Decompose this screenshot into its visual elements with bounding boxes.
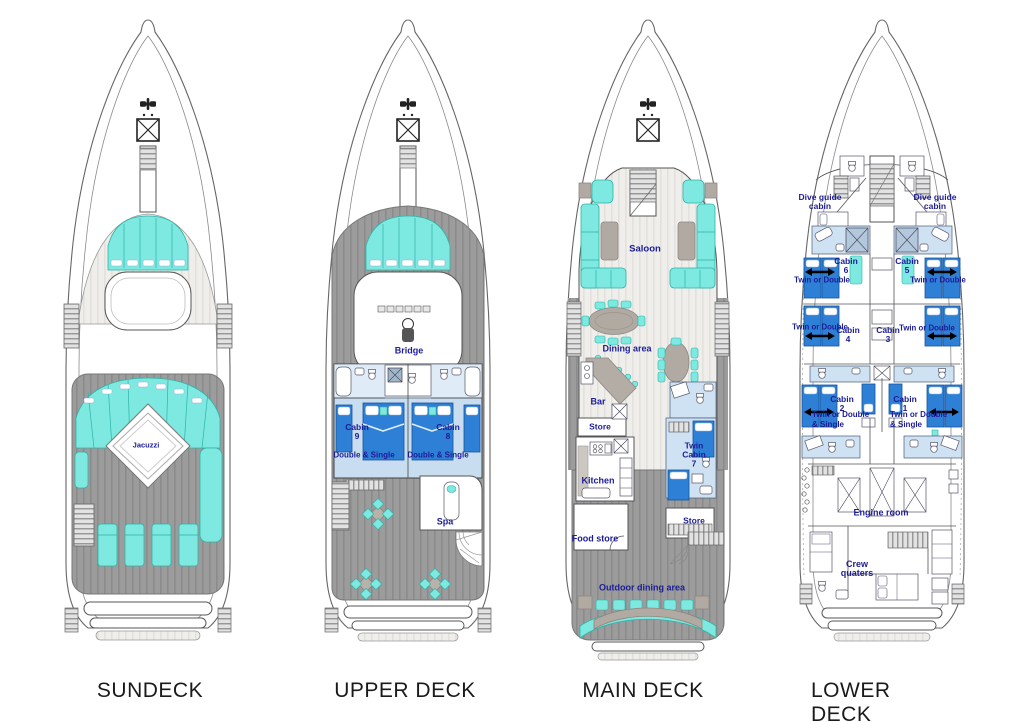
- dive-guide-port-label: Dive guide cabin: [799, 193, 842, 211]
- upper-deck-plan: [325, 20, 491, 641]
- port-stairs: [567, 302, 581, 356]
- main-deck-plan: [566, 20, 730, 660]
- deck-plans-drawing: [0, 0, 1024, 722]
- coffee-table: [601, 222, 618, 260]
- cabin9-type-label: Double & Single: [333, 451, 394, 460]
- cabin9-label: Cabin 9: [345, 423, 369, 441]
- cabin5-label: Cabin 5: [895, 257, 919, 275]
- central-staircase: [870, 156, 894, 222]
- helm-chair: [402, 328, 414, 342]
- cabin8-label: Cabin 8: [436, 423, 460, 441]
- armchair: [592, 180, 613, 203]
- crew-quarters-label: Crew quaters: [841, 560, 874, 578]
- bow-hatch-icon: [397, 119, 419, 141]
- bathtub: [336, 367, 351, 396]
- food-store-label: Food store: [572, 535, 619, 544]
- starboard-stairs: [715, 302, 729, 356]
- cabin6-label: Cabin 6: [834, 257, 858, 275]
- saloon-label: Saloon: [629, 245, 661, 254]
- bridge-label: Bridge: [395, 347, 424, 356]
- stairs-down: [332, 482, 349, 530]
- outdoor-dining-label: Outdoor dining area: [599, 584, 685, 593]
- sundeck-title: SUNDECK: [97, 679, 203, 703]
- bridge-house: [354, 272, 462, 374]
- bow-stairs: [140, 148, 156, 170]
- cabin6-type-label: Twin or Double: [794, 276, 850, 285]
- cabin8-type-label: Double & Single: [407, 451, 468, 460]
- cabin1-type-label: Twin or Double & Single: [890, 410, 947, 430]
- upper-deck-title: UPPER DECK: [334, 679, 476, 703]
- armchair: [683, 180, 704, 203]
- twin-cabin7-label: Twin Cabin 7: [682, 442, 706, 469]
- engine-room-label: Engine room: [853, 509, 908, 518]
- starboard-side-stairs: [217, 304, 232, 348]
- dining-area-label: Dining area: [602, 345, 651, 354]
- lower-deck-title: LOWER DECK: [811, 679, 953, 722]
- spiral-staircase-icon: [630, 170, 656, 216]
- dive-guide-starboard-label: Dive guide cabin: [914, 193, 957, 211]
- cabin3-label: Cabin 3: [876, 326, 900, 344]
- cabin4-type-label: Twin or Double: [792, 323, 848, 332]
- side-bench: [75, 452, 88, 488]
- stairs-down: [74, 504, 94, 546]
- deck-plans-diagram: Jacuzzi Bridge Cabin 9 Double & Single C…: [0, 0, 1024, 722]
- jacuzzi-label: Jacuzzi: [133, 441, 160, 450]
- bar-label: Bar: [590, 398, 605, 407]
- coffee-table: [678, 222, 695, 260]
- sun-bed: [200, 448, 222, 542]
- kitchen-label: Kitchen: [581, 477, 614, 486]
- store-forward-label: Store: [589, 423, 611, 432]
- cabin3-type-label: Twin or Double: [899, 324, 955, 333]
- bathtub: [465, 367, 480, 396]
- cabin2-type-label: Twin or Double & Single: [812, 410, 869, 430]
- sundeck-plan: [64, 20, 232, 640]
- spa-label: Spa: [437, 518, 454, 527]
- bow-hatch-icon: [137, 119, 159, 141]
- port-side-stairs: [64, 304, 79, 348]
- main-deck-title: MAIN DECK: [582, 679, 703, 703]
- bow-hatch-icon: [637, 119, 659, 141]
- cabin5-type-label: Twin or Double: [910, 276, 966, 285]
- store-aft-label: Store: [683, 517, 705, 526]
